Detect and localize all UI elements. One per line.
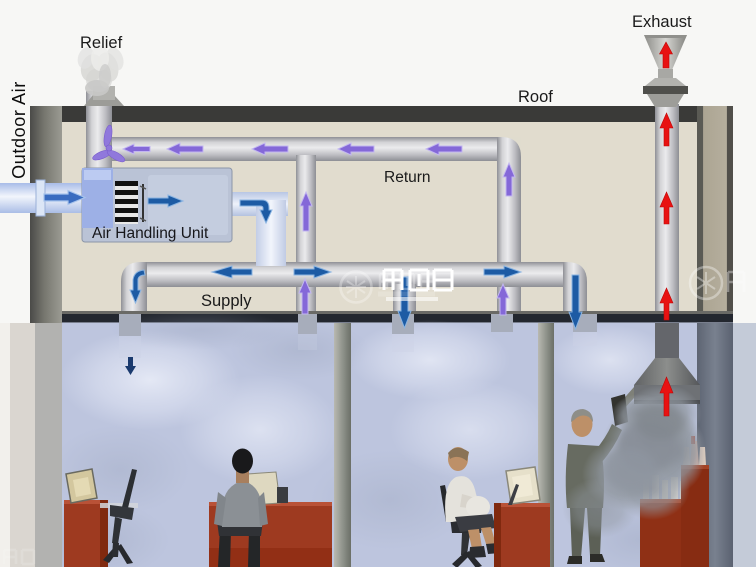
svg-text:Supply: Supply (201, 292, 252, 310)
svg-text:Air Handling Unit: Air Handling Unit (92, 225, 209, 242)
svg-text:Return: Return (384, 169, 431, 186)
svg-text:Roof: Roof (518, 88, 553, 106)
svg-text:Exhaust: Exhaust (632, 13, 692, 31)
svg-text:Outdoor Air: Outdoor Air (9, 81, 29, 179)
svg-text:Relief: Relief (80, 34, 123, 52)
